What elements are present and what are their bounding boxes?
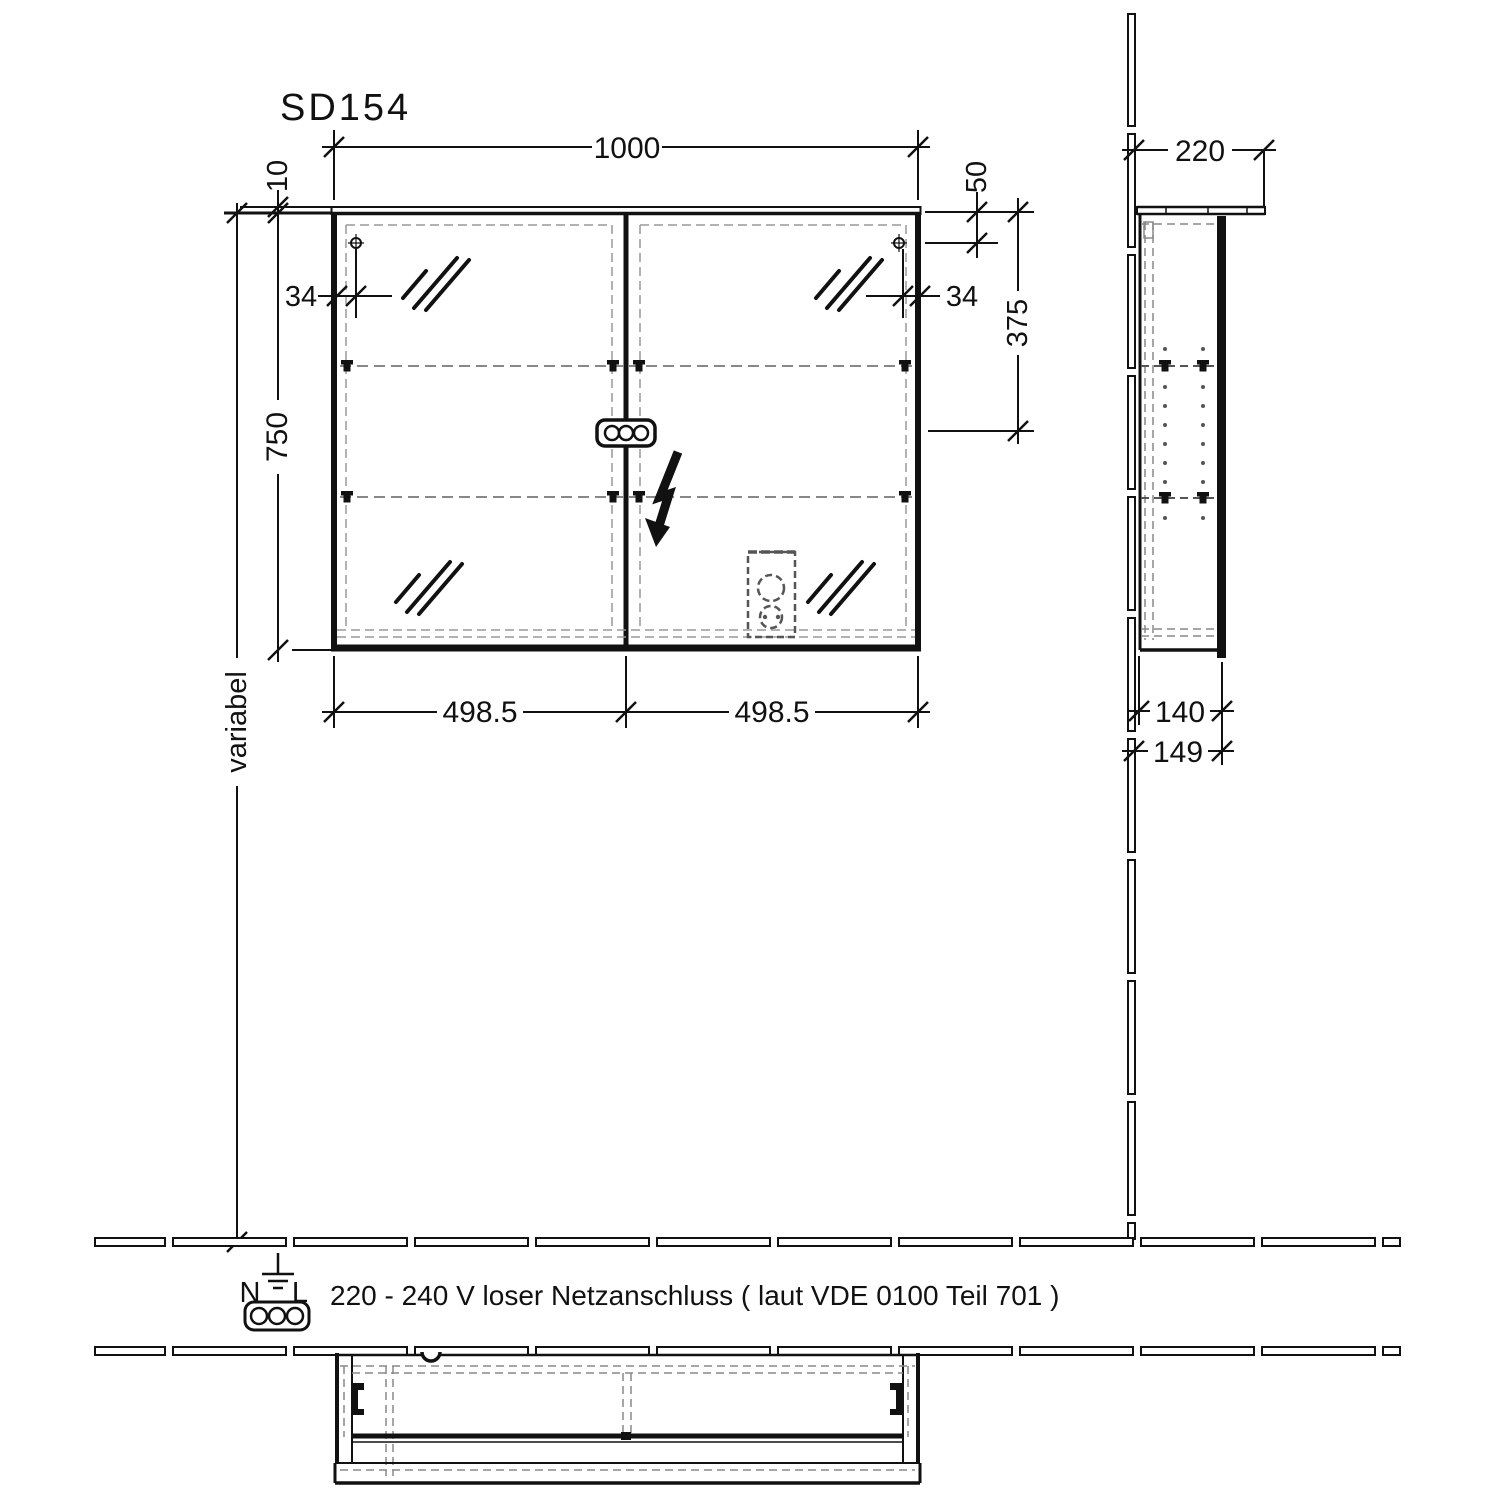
power-note-text: 220 - 240 V loser Netzanschluss ( laut V… xyxy=(330,1280,1059,1311)
plan-bottom-panel xyxy=(335,1463,920,1483)
dim-hinge-right xyxy=(866,249,940,318)
side-dashed-lines xyxy=(1141,222,1216,640)
drawing-canvas: SD154 1000 10 34 34 750 variabel 50 375 … xyxy=(0,0,1500,1500)
dim-top-panel-label: 10 xyxy=(262,160,294,192)
side-mirror-door xyxy=(1217,216,1226,658)
dim-variabel-label: variabel xyxy=(221,671,253,773)
ground-symbol-icon xyxy=(262,1253,294,1288)
dim-height-label: 750 xyxy=(261,412,294,462)
dim-50-label: 50 xyxy=(961,161,993,193)
terminal-n-label: N xyxy=(240,1277,261,1309)
wall-line-upper xyxy=(95,1238,1400,1246)
dim-width-label: 1000 xyxy=(594,132,661,165)
hinge-icon xyxy=(351,1383,903,1415)
model-title: SD154 xyxy=(280,87,411,129)
side-top-panel xyxy=(1137,206,1265,215)
dim-hinge-right-label: 34 xyxy=(946,281,978,313)
terminal-l-label: L xyxy=(292,1277,308,1309)
bottom-section xyxy=(95,1238,1400,1483)
dim-149-label: 149 xyxy=(1153,736,1203,769)
dim-door-widths xyxy=(322,656,930,728)
plan-dashed-lines xyxy=(340,1366,915,1476)
dim-depth-label: 220 xyxy=(1175,135,1225,168)
side-wall-line xyxy=(1128,14,1135,1239)
dim-door-left-label: 498.5 xyxy=(442,696,517,729)
dim-door-right-label: 498.5 xyxy=(734,696,809,729)
technical-drawing-page: SD154 1000 10 34 34 750 variabel 50 375 … xyxy=(0,0,1500,1500)
dim-hinge-left-label: 34 xyxy=(285,281,317,313)
dim-375-label: 375 xyxy=(1002,299,1034,347)
plan-view xyxy=(335,1352,920,1483)
dim-hinge-left xyxy=(318,249,392,318)
power-terminal-icon xyxy=(597,420,655,446)
side-view xyxy=(1122,14,1276,1239)
socket-icon xyxy=(748,552,795,637)
cable-notch-icon xyxy=(422,1352,440,1361)
dim-140-label: 140 xyxy=(1155,696,1205,729)
lightning-bolt-icon xyxy=(645,452,678,547)
front-view xyxy=(331,206,921,650)
